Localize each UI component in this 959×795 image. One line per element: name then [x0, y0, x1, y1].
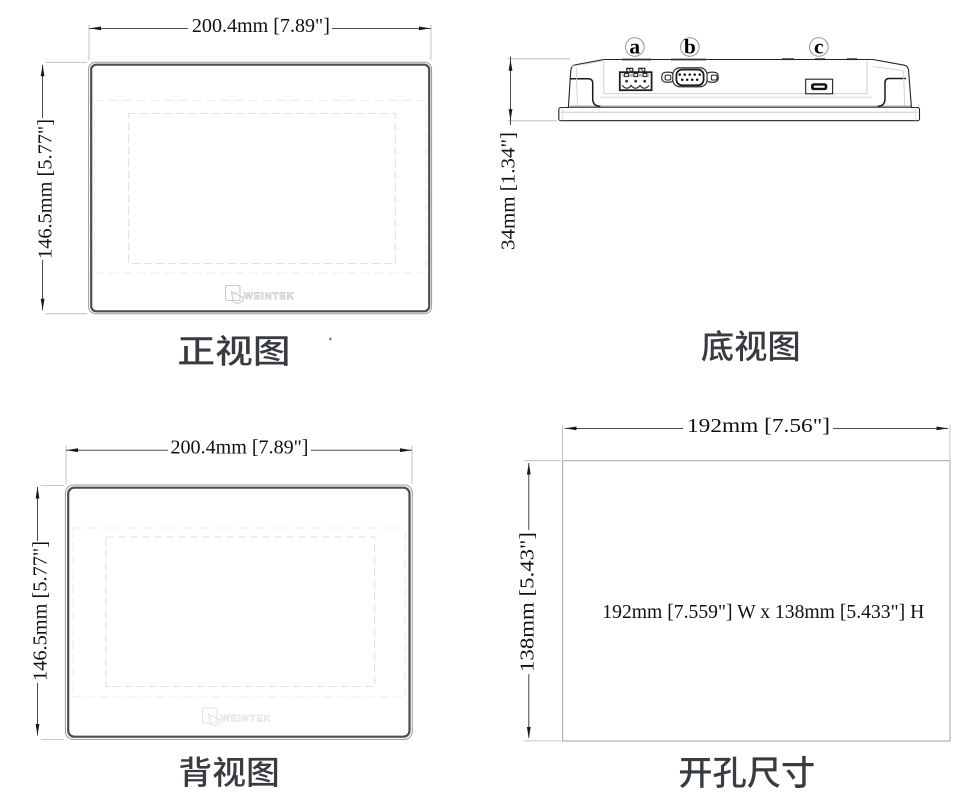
svg-text:WEINTEK: WEINTEK	[221, 714, 272, 724]
svg-text:34mm [1.34"]: 34mm [1.34"]	[498, 132, 520, 250]
svg-text:192mm [7.56"]: 192mm [7.56"]	[687, 415, 830, 437]
svg-text:138mm [5.43"]: 138mm [5.43"]	[517, 532, 539, 672]
svg-text:192mm [7.559"] W x 138mm [5.43: 192mm [7.559"] W x 138mm [5.433"] H	[602, 602, 924, 623]
svg-text:WEINTEK: WEINTEK	[244, 291, 295, 301]
svg-text:200.4mm [7.89"]: 200.4mm [7.89"]	[192, 15, 330, 37]
svg-text:200.4mm [7.89"]: 200.4mm [7.89"]	[171, 437, 309, 459]
svg-text:c: c	[814, 35, 824, 59]
svg-text:146.5mm [5.77"]: 146.5mm [5.77"]	[29, 541, 51, 681]
svg-text:146.5mm [5.77"]: 146.5mm [5.77"]	[35, 119, 57, 259]
svg-text:b: b	[684, 35, 696, 59]
svg-text:a: a	[629, 35, 640, 59]
